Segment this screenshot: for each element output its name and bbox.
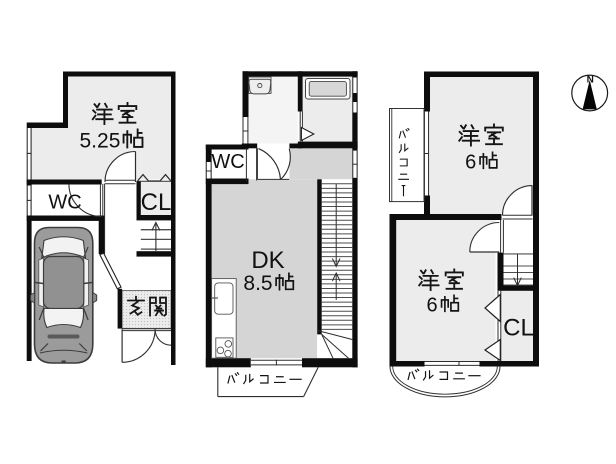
svg-text:8.5: 8.5 bbox=[243, 272, 272, 295]
svg-text:5.25: 5.25 bbox=[80, 129, 121, 152]
svg-text:6: 6 bbox=[465, 151, 476, 173]
svg-text:CL: CL bbox=[141, 189, 172, 216]
svg-text:N: N bbox=[587, 75, 594, 86]
svg-text:CL: CL bbox=[503, 315, 534, 342]
svg-text:DK: DK bbox=[251, 247, 284, 274]
svg-text:WC: WC bbox=[211, 151, 244, 173]
svg-text:6: 6 bbox=[426, 294, 437, 316]
svg-text:WC: WC bbox=[48, 192, 81, 214]
